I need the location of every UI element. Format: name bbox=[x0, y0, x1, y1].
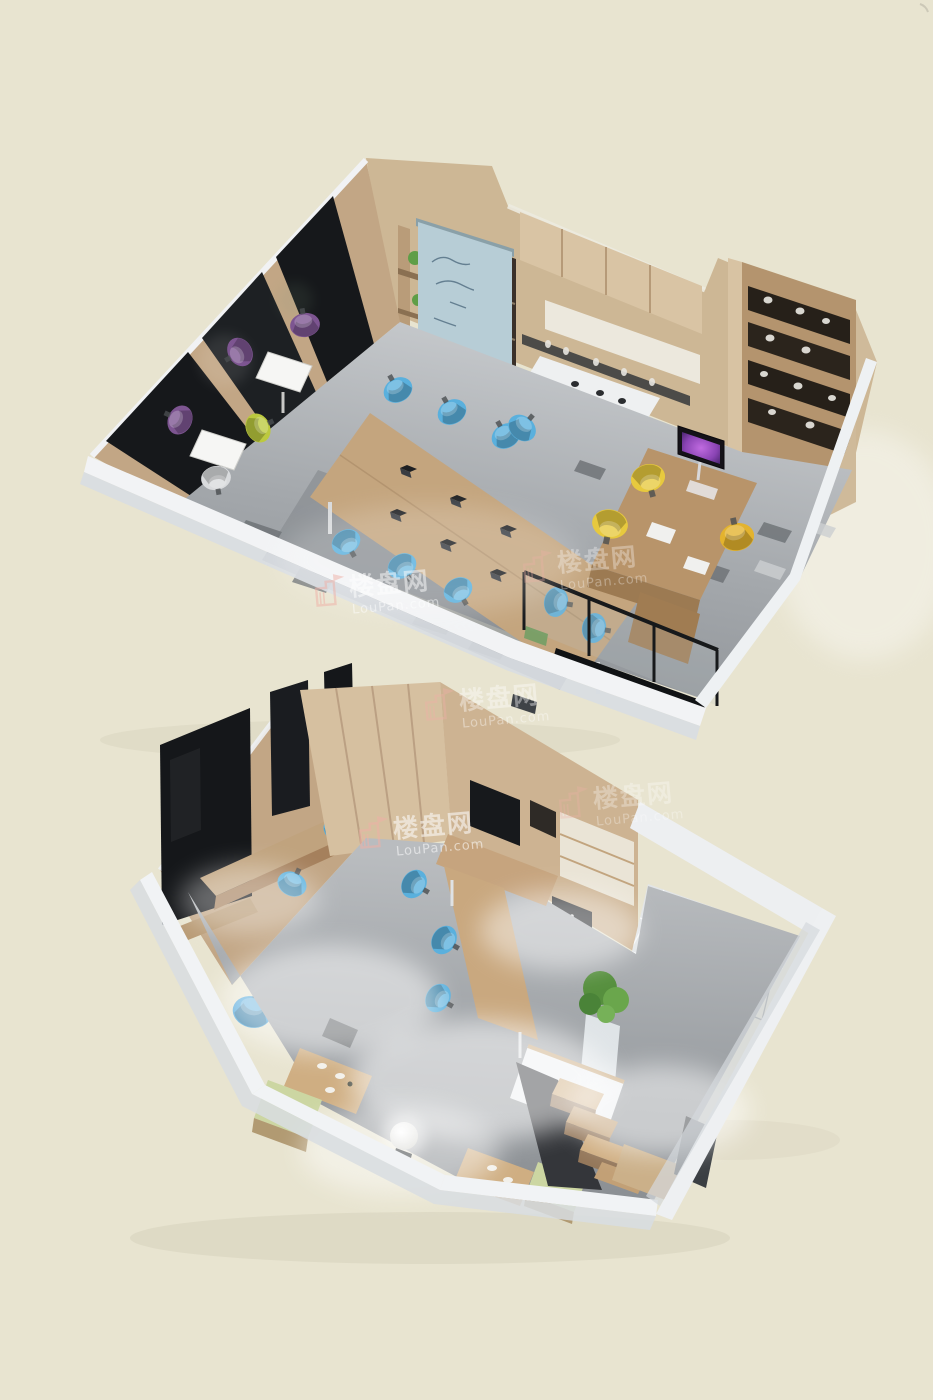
floorplan-render: 楼盘网 LouPan.com bbox=[0, 0, 933, 1400]
floorplan-svg: 楼盘网 LouPan.com bbox=[0, 0, 933, 1400]
